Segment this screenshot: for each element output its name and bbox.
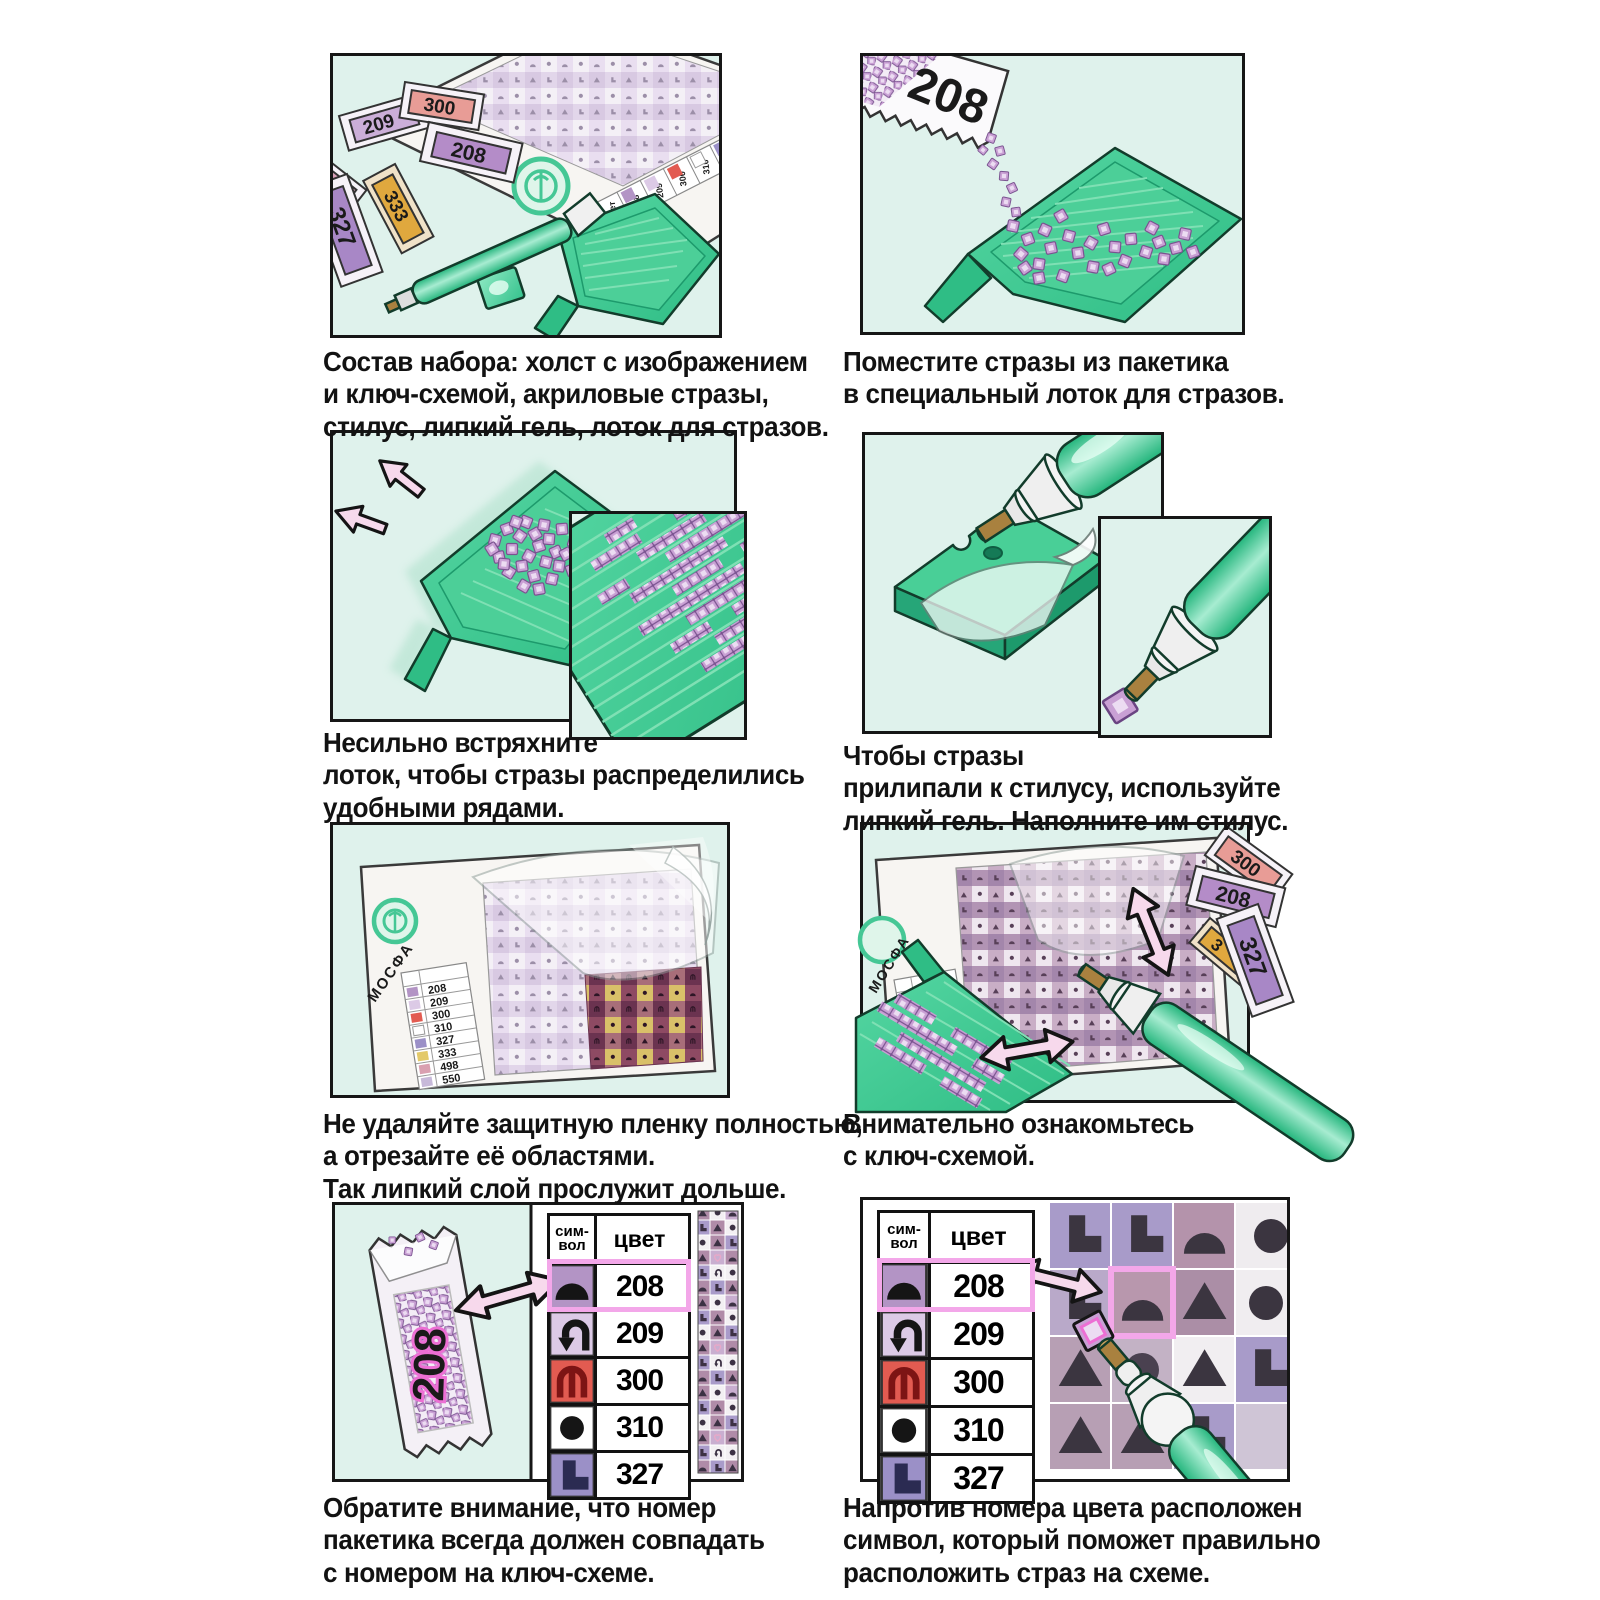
key-row-327: 327 [550, 1450, 688, 1497]
key-table: сим-вол цвет 208 209 300 310 327 [877, 1210, 1035, 1504]
bag-label: 208 [404, 1327, 456, 1402]
panel-symbol-placement: сим-вол цвет 208 209 300 310 327 [860, 1197, 1290, 1482]
caption-step-6: Внимательно ознакомьтесь с ключ-схемой. [843, 1108, 1194, 1173]
panel-bag-number-match: 208 сим-вол цвет 208 209 300 310 [332, 1202, 744, 1482]
key-row-209: 209 [550, 1309, 688, 1356]
caption-step-5: Не удаляйте защитную пленку полностью, а… [323, 1108, 862, 1205]
key-table: сим-вол цвет 208 209 300 310 327 [547, 1213, 691, 1500]
key-table-header: сим-вол цвет [550, 1216, 688, 1262]
study-chart-illustration: МОСФА 208209 300310 327333 498 [860, 822, 1320, 1112]
key-row-208: 208 [550, 1262, 688, 1309]
bag-208: 208 [863, 56, 1008, 150]
panel-protective-film: МОСФА 208209 300310 327333 498550 [330, 822, 730, 1098]
protective-film-illustration: МОСФА 208209 300310 327333 498550 [333, 825, 727, 1095]
canvas-with-chart: МОСФА 208209 300310 327333 498550 [361, 837, 719, 1091]
u-turn-arrow-icon [880, 1312, 928, 1357]
bag-208: 208 [368, 1225, 493, 1459]
key-row-300: 300 [550, 1356, 688, 1403]
color-header: цвет [931, 1213, 1026, 1261]
chart-grid-vivid [585, 967, 703, 1069]
caption-step-4: Чтобы стразы прилипали к стилусу, исполь… [843, 740, 1288, 837]
arrow-left-icon [333, 498, 390, 542]
u-turn-arrow-icon [550, 1312, 594, 1356]
caption-step-7: Обратите внимание, что номер пакетика вс… [323, 1492, 765, 1589]
stones-rows-zoom [572, 514, 744, 737]
panel-kit-contents: МОСФА цвет 208 209 300 310 327 333 [330, 53, 722, 338]
key-row-209: 209 [880, 1309, 1032, 1357]
inset-stylus-with-stone [1098, 516, 1272, 738]
stylus-tip [1101, 519, 1269, 735]
panel-study-chart: МОСФА 208209 300310 327333 498 [860, 822, 1320, 1112]
key-row-300: 300 [880, 1357, 1032, 1405]
color-header: цвет [597, 1216, 682, 1262]
dot-icon [880, 1408, 928, 1453]
pour-into-tray-illustration: 208 [863, 56, 1242, 332]
letter-l-icon [550, 1453, 594, 1497]
tray [925, 148, 1241, 322]
caption-step-3: Несильно встряхните лоток, чтобы стразы … [323, 727, 805, 824]
key-table-header: сим-вол цвет [880, 1213, 1032, 1261]
panel-pour-into-tray: 208 [860, 53, 1245, 335]
inset-stones-in-rows [569, 511, 747, 740]
dot-icon [550, 1406, 594, 1450]
caption-step-8: Напротив номера цвета расположен символ,… [843, 1492, 1320, 1589]
arrow-up-left-icon [371, 450, 429, 504]
chart-symbol-strip [698, 1211, 738, 1473]
kit-contents-illustration: МОСФА цвет 208 209 300 310 327 333 [333, 56, 719, 335]
key-row-310: 310 [880, 1405, 1032, 1453]
trident-icon [550, 1359, 594, 1403]
key-row-310: 310 [550, 1403, 688, 1450]
caption-step-1: Состав набора: холст с изображением и кл… [323, 346, 829, 443]
dome-icon [550, 1265, 594, 1309]
dome-icon [880, 1264, 928, 1309]
caption-step-2: Поместите стразы из пакетика в специальн… [843, 346, 1284, 411]
stylus-stone-zoom [1101, 519, 1269, 735]
key-row-208: 208 [880, 1261, 1032, 1309]
trident-icon [880, 1360, 928, 1405]
